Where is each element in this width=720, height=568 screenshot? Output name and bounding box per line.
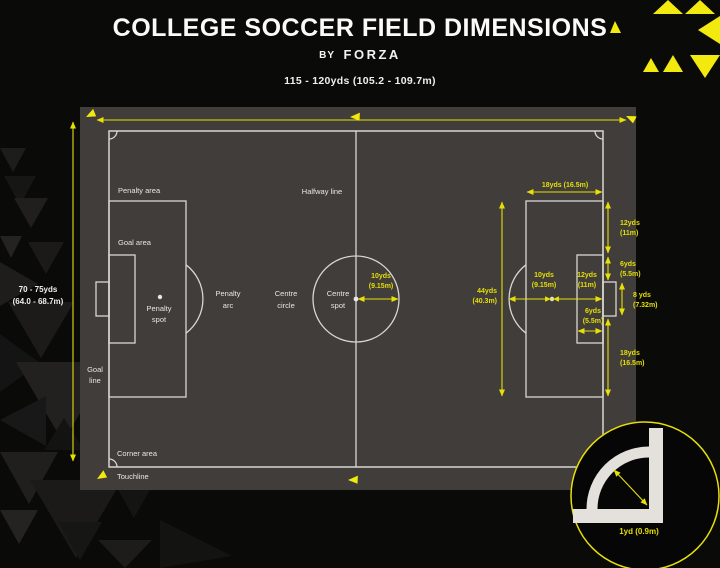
goal-width-label: 8 yds <box>633 292 651 299</box>
touchline-label: Touchline <box>117 472 149 481</box>
svg-text:(11m): (11m) <box>620 230 638 237</box>
svg-text:arc: arc <box>223 301 234 310</box>
svg-text:spot: spot <box>152 315 167 324</box>
goal-area-label: Goal area <box>118 238 152 247</box>
svg-text:(7.32m): (7.32m) <box>633 302 658 309</box>
svg-text:(40.3m): (40.3m) <box>472 298 497 305</box>
field-length-dimension: 115 - 120yds (105.2 - 109.7m) <box>0 75 720 87</box>
corner-radius-label: 1yd (0.9m) <box>619 527 659 536</box>
corner-area-label: Corner area <box>117 449 158 458</box>
penalty-width-label: 44yds <box>477 288 497 295</box>
post-to-penalty-edge-label: 18yds <box>620 350 640 357</box>
byline: BY FORZA <box>0 46 720 64</box>
centre-circle-label: Centre <box>275 289 298 298</box>
svg-text:line: line <box>89 376 101 385</box>
centre-spot-label: Centre <box>327 289 350 298</box>
byline-prefix: BY <box>319 50 335 61</box>
penalty-spot-label: Penalty <box>146 304 171 313</box>
svg-text:(11m): (11m) <box>578 282 596 289</box>
magnified-touchline <box>573 509 663 523</box>
header: COLLEGE SOCCER FIELD DIMENSIONS BY FORZA… <box>0 14 720 87</box>
brand-logo: FORZA <box>344 47 401 62</box>
svg-text:(9.15m): (9.15m) <box>532 282 557 289</box>
penalty-arc-label: Penalty <box>215 289 240 298</box>
svg-text:spot: spot <box>331 301 346 310</box>
penalty-depth-label: 18yds (16.5m) <box>542 182 588 189</box>
corner-magnifier: 1yd (0.9m) <box>571 422 719 568</box>
halfway-line-label: Halfway line <box>302 187 342 196</box>
page-title: COLLEGE SOCCER FIELD DIMENSIONS <box>0 14 720 43</box>
penalty-spot-left <box>158 295 162 299</box>
penalty-area-label: Penalty area <box>118 186 161 195</box>
svg-text:(16.5m): (16.5m) <box>620 360 645 367</box>
arc-to-spot-label: 10yds <box>534 272 554 279</box>
centre-spot <box>354 297 359 302</box>
goal-line-label: Goal <box>87 365 103 374</box>
goal-area-to-post-label: 6yds <box>620 261 636 268</box>
spot-to-goal-line-label: 12yds <box>577 272 597 279</box>
infographic-canvas: Penalty area Goal area Penalty spot Pena… <box>0 0 720 568</box>
svg-text:(5.5m): (5.5m) <box>583 318 604 325</box>
svg-text:(5.5m): (5.5m) <box>620 271 641 278</box>
svg-text:(9.15m): (9.15m) <box>369 283 394 290</box>
goal-area-depth-label: 6yds <box>585 308 601 315</box>
magnified-goal-line <box>649 428 663 523</box>
svg-text:circle: circle <box>277 301 295 310</box>
svg-text:(64.0 - 68.7m): (64.0 - 68.7m) <box>13 297 64 306</box>
svg-text:70 - 75yds: 70 - 75yds <box>19 285 58 294</box>
edge-to-goal-area-label: 12yds <box>620 220 640 227</box>
centre-radius-label: 10yds <box>371 273 391 280</box>
